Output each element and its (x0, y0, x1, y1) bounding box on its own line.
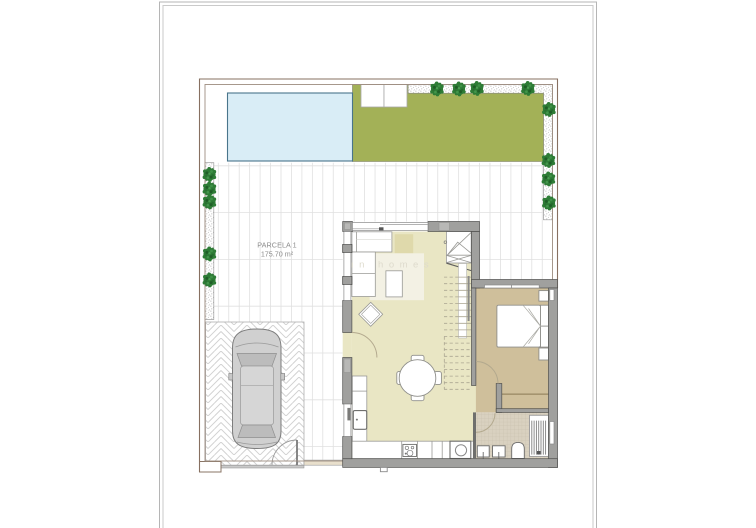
svg-text:175.70 m²: 175.70 m² (261, 250, 294, 259)
svg-text:PARCELA 1: PARCELA 1 (257, 241, 297, 250)
svg-text:ın homes: ın homes (351, 260, 434, 271)
